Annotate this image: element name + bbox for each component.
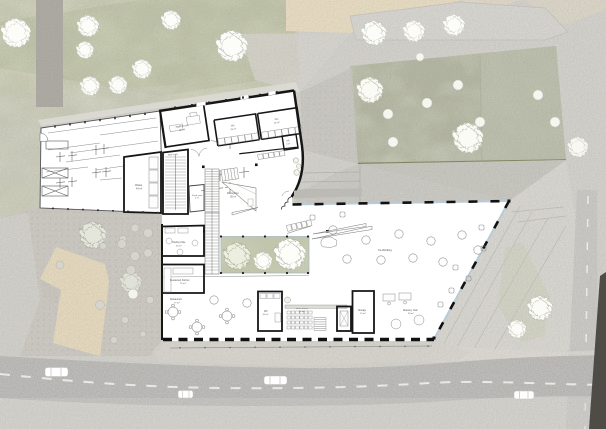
svg-text:22 m²: 22 m² bbox=[180, 282, 186, 285]
svg-text:Tasting Cafe: Tasting Cafe bbox=[172, 241, 186, 244]
svg-text:44 m²: 44 m² bbox=[136, 187, 142, 190]
svg-text:30 m²: 30 m² bbox=[408, 312, 414, 315]
svg-text:25 m²: 25 m² bbox=[299, 310, 305, 313]
svg-text:Restaurant: Restaurant bbox=[170, 298, 182, 301]
svg-text:Reception: Reception bbox=[227, 191, 239, 195]
svg-text:30 m²: 30 m² bbox=[176, 244, 182, 247]
svg-text:36 m²: 36 m² bbox=[230, 196, 236, 199]
svg-text:Co-Working: Co-Working bbox=[378, 248, 392, 252]
svg-text:77 m²: 77 m² bbox=[174, 301, 180, 304]
svg-text:Waste: Waste bbox=[135, 183, 143, 187]
svg-text:Fresh roast: Fresh roast bbox=[192, 194, 203, 197]
svg-text:10 m²: 10 m² bbox=[360, 312, 366, 315]
svg-text:WC: WC bbox=[264, 311, 268, 313]
svg-text:WC: WC bbox=[231, 124, 236, 128]
svg-text:Roastery Cafe: Roastery Cafe bbox=[403, 309, 418, 312]
svg-text:WC: WC bbox=[274, 118, 279, 122]
svg-text:5 m²: 5 m² bbox=[195, 197, 199, 200]
svg-text:Storage: Storage bbox=[358, 309, 367, 312]
svg-text:10 m²: 10 m² bbox=[263, 313, 269, 316]
svg-text:Restaurant Kitchen: Restaurant Kitchen bbox=[170, 279, 190, 282]
